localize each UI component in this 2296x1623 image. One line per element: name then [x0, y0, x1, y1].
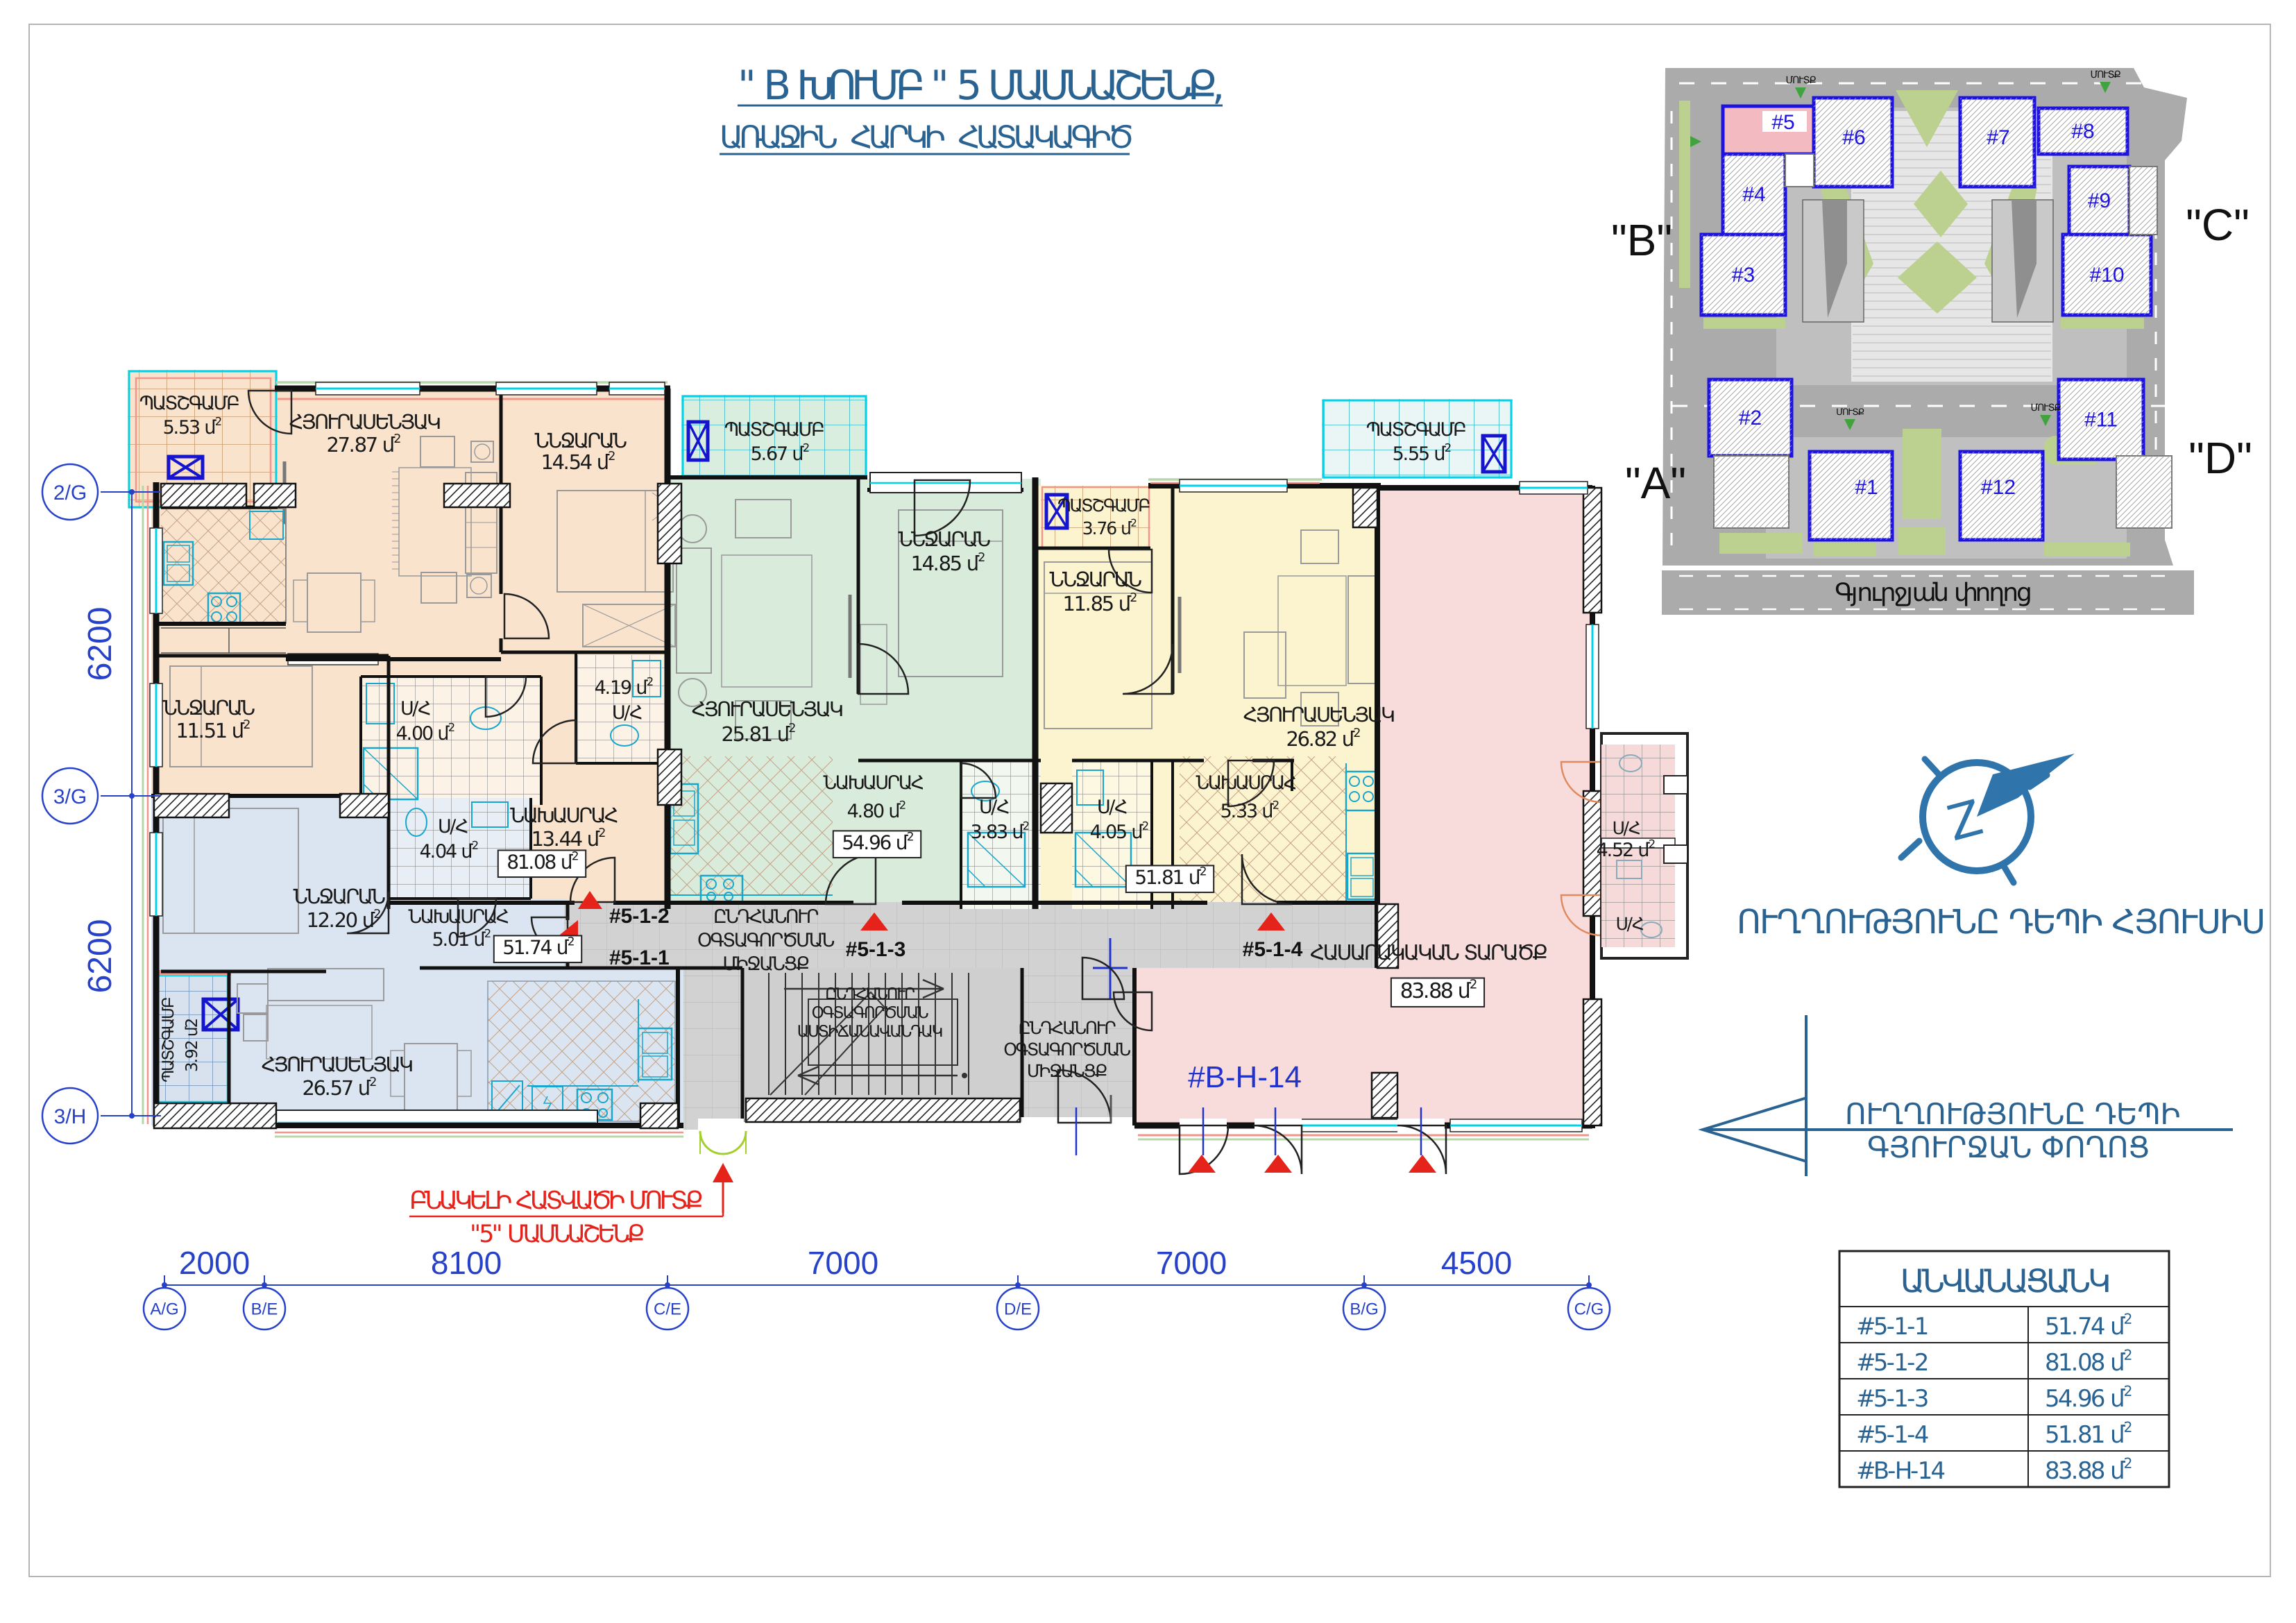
- svg-text:6200: 6200: [82, 919, 119, 994]
- svg-text:B/G: B/G: [1350, 1300, 1378, 1319]
- svg-text:4500: 4500: [1441, 1245, 1512, 1281]
- svg-text:#10: #10: [2089, 264, 2124, 287]
- svg-text:"B": "B": [1611, 215, 1672, 265]
- svg-text:"A": "A": [1625, 458, 1686, 508]
- svg-text:#2: #2: [1739, 407, 1762, 430]
- svg-text:#7: #7: [1987, 126, 2009, 149]
- svg-text:#6: #6: [1842, 126, 1865, 149]
- svg-text:#1: #1: [1855, 476, 1878, 499]
- svg-text:#5-1-1: #5-1-1: [609, 946, 670, 969]
- svg-text:"D": "D": [2188, 433, 2252, 483]
- svg-text:C/G: C/G: [1574, 1300, 1604, 1319]
- svg-text:8100: 8100: [431, 1245, 502, 1281]
- svg-text:#11: #11: [2084, 409, 2118, 432]
- svg-text:D/E: D/E: [1004, 1300, 1032, 1319]
- svg-text:#5-1-2: #5-1-2: [609, 905, 670, 928]
- svg-text:#12: #12: [1981, 476, 2016, 499]
- svg-text:#4: #4: [1742, 183, 1765, 206]
- svg-text:C/E: C/E: [654, 1300, 681, 1319]
- svg-text:A/G: A/G: [150, 1300, 178, 1319]
- svg-text:3/H: 3/H: [54, 1105, 87, 1128]
- svg-text:#5-1-4: #5-1-4: [1243, 938, 1303, 961]
- svg-text:#8: #8: [2071, 120, 2094, 143]
- svg-text:#B-H-14: #B-H-14: [1188, 1060, 1302, 1094]
- svg-text:#5-1-3: #5-1-3: [846, 938, 906, 961]
- svg-text:#5: #5: [1771, 111, 1794, 134]
- svg-text:B/E: B/E: [251, 1300, 278, 1319]
- svg-text:2000: 2000: [179, 1245, 250, 1281]
- svg-text:7000: 7000: [1156, 1245, 1227, 1281]
- svg-text:"C": "C": [2186, 200, 2250, 250]
- svg-text:3/G: 3/G: [53, 785, 87, 808]
- svg-text:#9: #9: [2088, 189, 2111, 212]
- svg-text:7000: 7000: [808, 1245, 878, 1281]
- svg-text:2/G: 2/G: [53, 482, 87, 504]
- svg-text:#3: #3: [1732, 264, 1755, 287]
- svg-text:6200: 6200: [82, 607, 119, 681]
